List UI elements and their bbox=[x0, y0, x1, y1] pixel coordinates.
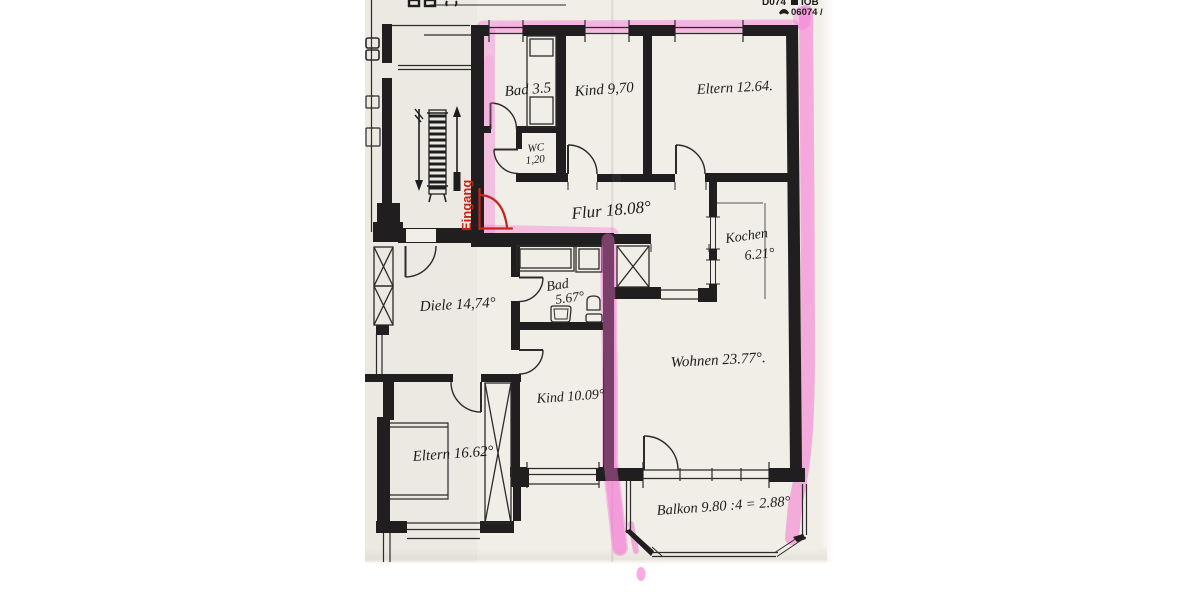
svg-text:1,20: 1,20 bbox=[525, 153, 546, 167]
svg-text:D074: D074 bbox=[762, 0, 786, 8]
svg-text:Eingang: Eingang bbox=[459, 180, 474, 231]
svg-text:06074 /: 06074 / bbox=[791, 7, 823, 18]
svg-text:6.21°: 6.21° bbox=[744, 246, 776, 264]
